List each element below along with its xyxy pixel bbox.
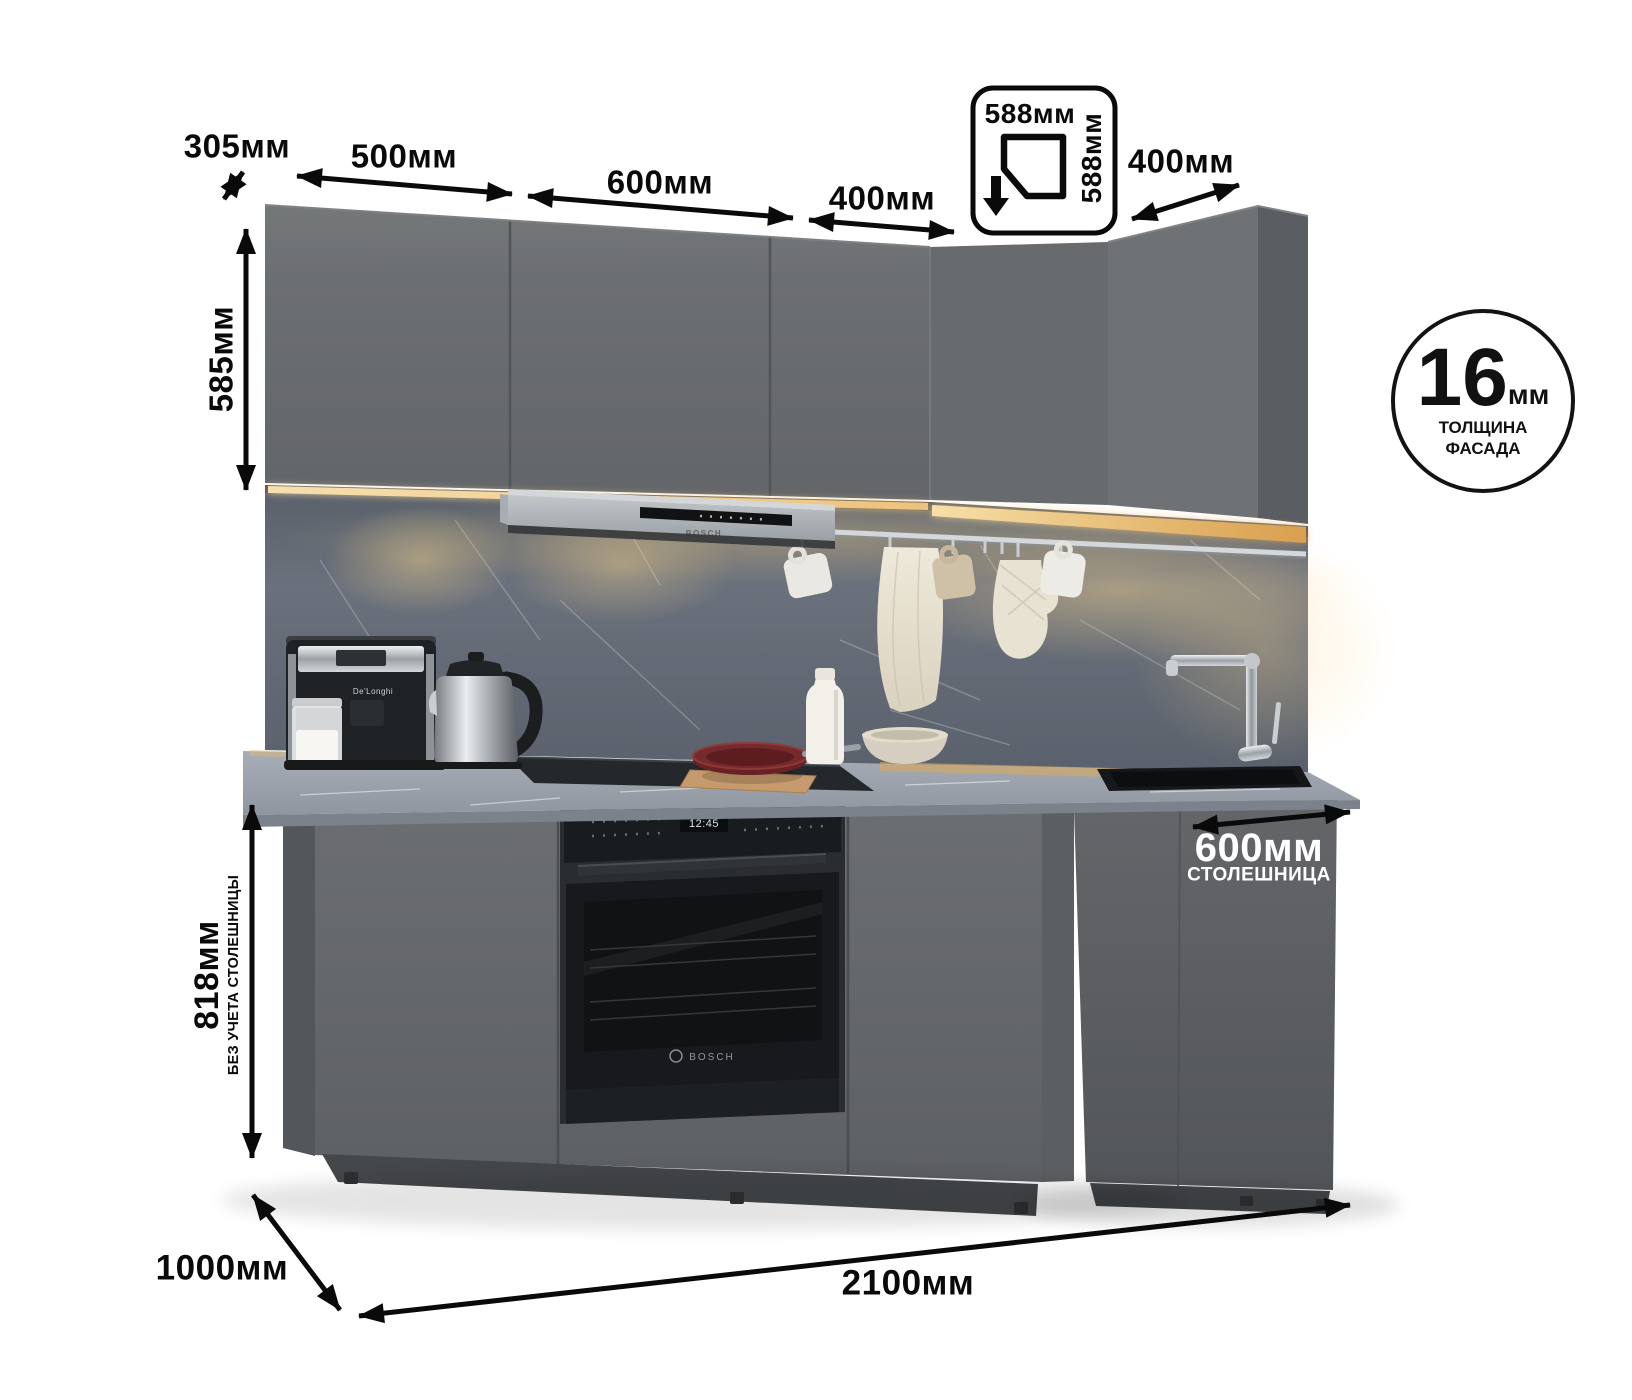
dim-500-label: 500мм [351,140,457,173]
coffee-spout [350,700,384,726]
dim-305-label: 305мм [184,130,290,163]
coffee-machine: De'Longhi [284,636,446,770]
oven-clock: 12:45 [689,818,719,830]
base-cabinets: 12:45 BOSCH [283,791,1337,1216]
kitchen-scene: BOSCH 12:45 [0,0,1632,1400]
dim-600-countertop-note: СТОЛЕШНИЦА [1187,866,1331,885]
dim-400-right-label: 400мм [1128,145,1234,178]
coffee-brand: De'Longhi [353,687,393,696]
right-upper-side-panel [1258,206,1308,524]
dim-818-note: БЕЗ УЧЕТА СТОЛЕШНИЦЫ [227,875,242,1075]
right-upper-cabinet [1108,206,1258,518]
dim-1000-label: 1000мм [156,1251,289,1286]
sink [1097,766,1312,791]
kitchen-dimension-diagram: BOSCH 12:45 [0,0,1632,1400]
faucet-spout-tip [1166,660,1178,676]
oven: 12:45 BOSCH [560,797,845,1124]
corner-box-side-label: 588мм [1078,113,1106,204]
dim-600-countertop-label: 600мм [1195,828,1323,868]
facade-thickness-unit: мм [1508,381,1549,413]
dim-305-arrow [224,172,243,199]
upper-front-row [265,205,930,500]
dim-585-label: 585мм [205,306,238,412]
upper-cabinets [265,205,1308,543]
hood-left-cap [500,494,508,525]
facade-thickness-badge: 16мм ТОЛЩИНА ФАСАДА [1391,309,1575,493]
corner-base-door [1042,809,1074,1182]
dim-400-left-arrow [809,220,954,232]
facade-thickness-caption-1: ТОЛЩИНА [1439,417,1528,438]
oven-brand: BOSCH [689,1052,735,1063]
facade-thickness-value: 16 [1417,343,1508,413]
dim-600-label: 600мм [607,166,713,199]
drip-tray [284,760,446,770]
base-left-side-panel [283,820,315,1156]
dim-400-left-label: 400мм [829,182,935,215]
dim-818-label: 818мм [190,920,224,1030]
dim-2100-label: 2100мм [842,1266,975,1301]
corner-box-top-label: 588мм [985,100,1076,128]
facade-thickness-caption-2: ФАСАДА [1445,438,1520,459]
dim-500-arrow [297,176,512,194]
facade-thickness-value-row: 16мм [1417,343,1550,413]
corner-upper-cabinet [930,242,1108,505]
